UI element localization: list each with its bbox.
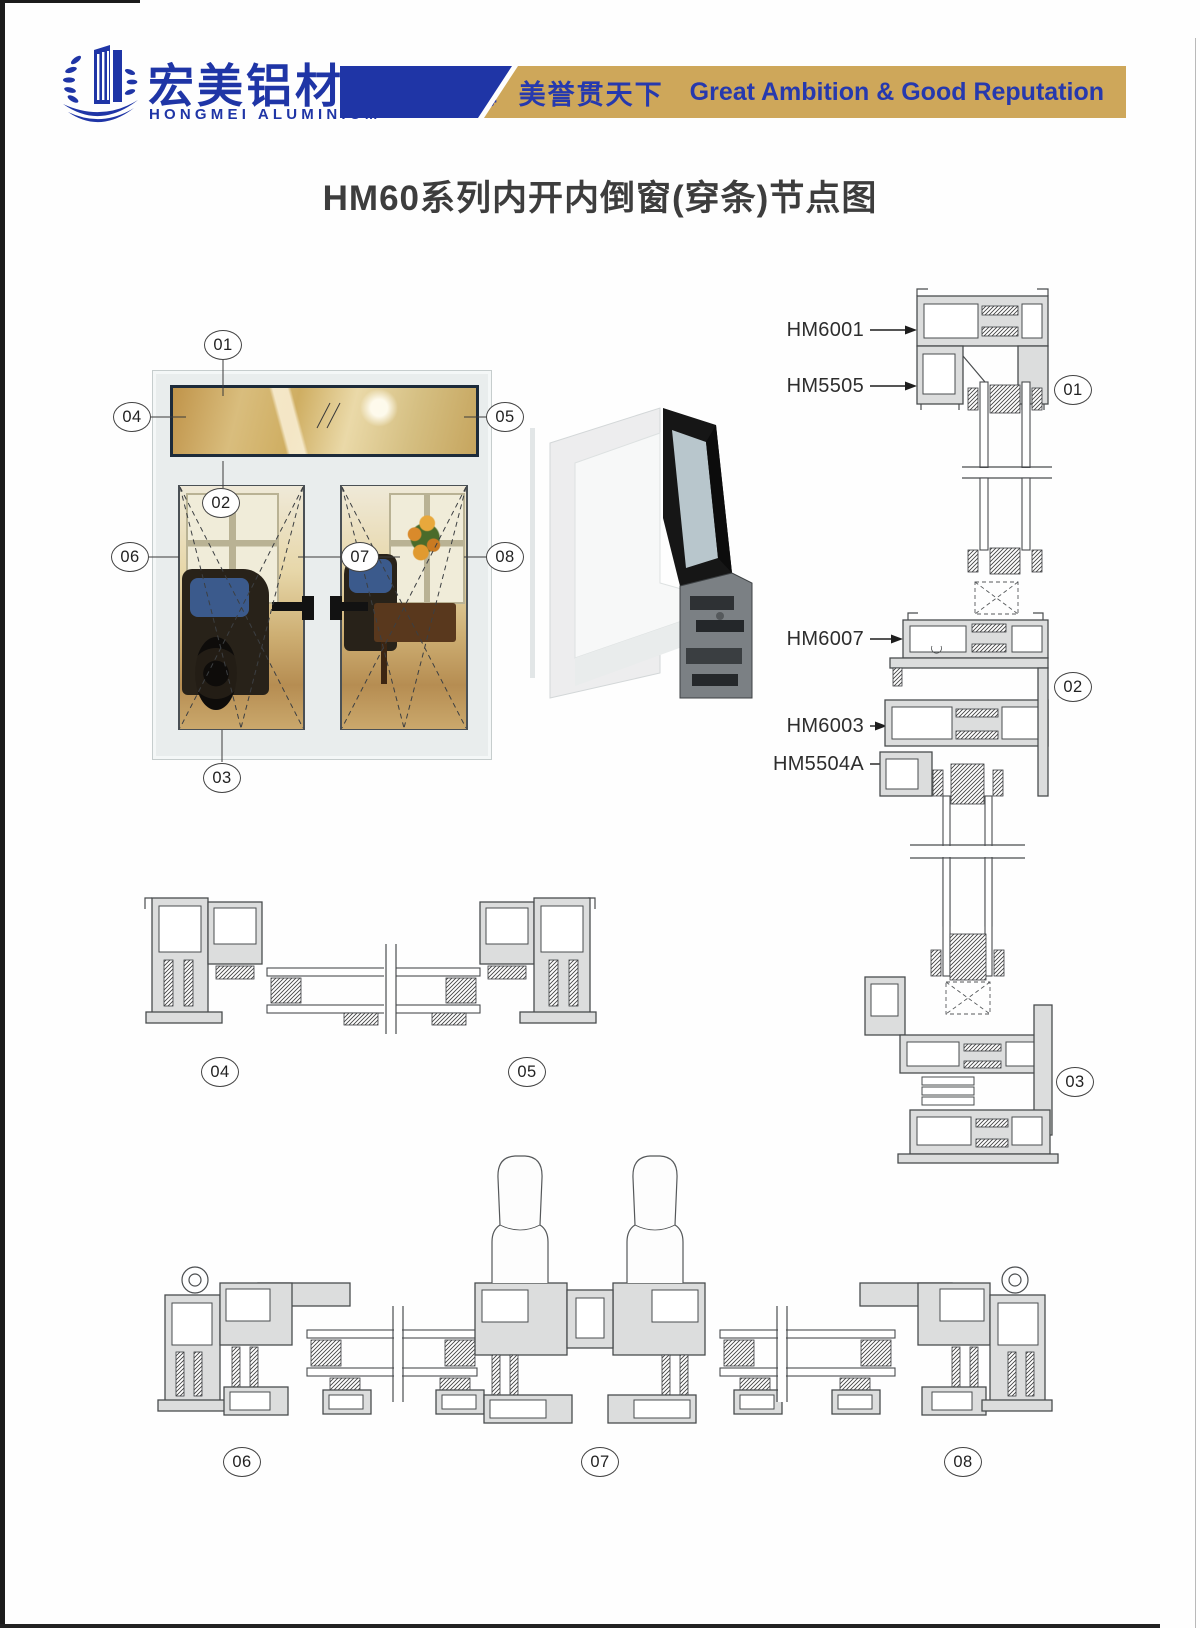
slogan-en: Great Ambition & Good Reputation [690,78,1104,107]
profile-label-HM6003: HM6003 [748,713,864,739]
callout-07-elevation: 07 [341,542,379,572]
callout-06-elevation: 06 [111,542,149,572]
scan-edge-bottom [0,1624,1160,1628]
callout-08-meeting-stile-section: 08 [944,1447,982,1477]
callout-08-elevation: 08 [486,542,524,572]
profile-label-HM5505: HM5505 [748,373,864,399]
page-title: HM60系列内开内倒窗(穿条)节点图 [0,170,1200,221]
callout-01-elevation: 01 [204,330,242,360]
scan-edge-left [0,0,5,1628]
handle-profile-left [492,1156,548,1283]
hongmei-logo-icon [56,42,146,142]
callout-04-horizontal-section: 04 [201,1057,239,1087]
brand-cn-text: 宏美铝材 [148,60,344,112]
horizontal-section-04-05-drawing [140,862,600,1037]
profile-label-HM5504A: HM5504A [748,751,864,777]
callout-04-elevation: 04 [113,402,151,432]
callout-03-elevation: 03 [203,763,241,793]
scan-edge-right [1195,38,1196,1628]
right-sash-opening-symbol [342,487,466,728]
callout-07-meeting-stile-section: 07 [581,1447,619,1477]
profile-label-HM6001: HM6001 [748,317,864,343]
profile-corner-3d-render [520,368,770,708]
elevation-annotations [100,300,530,800]
scan-edge-top [0,0,140,3]
meeting-stile-section-drawing [140,1140,1070,1435]
callout-02-elevation: 02 [202,488,240,518]
callout-03-vertical-section: 03 [1056,1067,1094,1097]
callout-02-vertical-section: 02 [1054,672,1092,702]
handle-profile-right [627,1156,683,1283]
callout-01-vertical-section: 01 [1054,375,1092,405]
callout-06-meeting-stile-section: 06 [223,1447,261,1477]
header-blue-bar [340,66,512,118]
header-gold-banner: 宏图筑四海 美誉贯天下 Great Ambition & Good Reputa… [484,66,1126,118]
catalog-page: 宏美铝材® HONGMEI ALUMINIUM 宏图筑四海 美誉贯天下 Grea… [0,0,1200,1628]
profile-label-HM6007: HM6007 [748,626,864,652]
callout-05-elevation: 05 [486,402,524,432]
left-sash-opening-symbol [180,487,303,728]
callout-05-horizontal-section: 05 [508,1057,546,1087]
